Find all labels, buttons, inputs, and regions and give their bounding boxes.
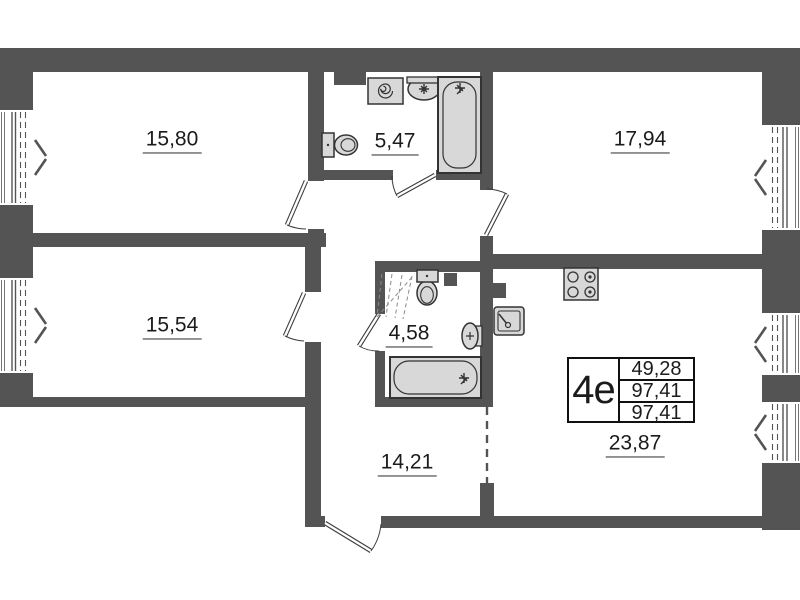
area-value: 97,41 (620, 381, 693, 403)
washing-machine-icon (368, 78, 403, 104)
room-label-bedroom-mid-left: 15,54 (143, 314, 202, 339)
sink-icon (407, 77, 441, 100)
window-opening-chevron (35, 140, 46, 175)
window-kitchen-lower (755, 404, 799, 461)
bathtub-icon (390, 357, 481, 398)
window-kitchen-upper (755, 315, 799, 373)
apartment-type-code: 4е (569, 359, 620, 421)
room-label-hallway: 14,21 (378, 451, 437, 476)
window-bedroom-top-right (755, 127, 799, 228)
room-label-bedroom-top-left: 15,80 (143, 128, 202, 153)
room-label-kitchen-living: 23,87 (606, 432, 665, 457)
sink-icon (462, 323, 482, 349)
apartment-areas: 49,28 97,41 97,41 (620, 359, 693, 421)
bathtub-icon (438, 77, 481, 173)
door-bedroom-mid-left (285, 293, 304, 341)
door-entrance (325, 523, 381, 551)
room-label-bathroom-top: 5,47 (372, 130, 419, 155)
window-bedroom-mid-left (2, 280, 47, 371)
door-bathroom-mid (359, 314, 379, 351)
kitchen-wall-nib (493, 283, 506, 298)
vent-shaft (444, 273, 457, 286)
door-bedroom-top-right (486, 189, 507, 235)
room-label-bathroom-mid: 4,58 (386, 322, 433, 347)
room-label-bedroom-top-right: 17,94 (611, 128, 670, 153)
kitchen-sink-icon (494, 307, 524, 335)
toilet-icon (417, 270, 438, 305)
toilet-icon (322, 133, 358, 157)
area-value: 97,41 (620, 403, 693, 423)
window-opening-chevron (35, 308, 46, 343)
door-bathroom-top (392, 175, 435, 196)
window-opening-chevron (755, 160, 766, 195)
window-opening-chevron (755, 327, 766, 362)
window-bedroom-top-left (2, 112, 47, 203)
door-bedroom-top-left (287, 181, 306, 229)
floor-plan-drawing (0, 0, 800, 600)
floor-plan: 15,80 5,47 17,94 15,54 4,58 14,21 23,87 … (0, 0, 800, 600)
window-opening-chevron (755, 415, 766, 450)
stove-icon (564, 268, 598, 300)
area-value: 49,28 (620, 359, 693, 381)
apartment-info-box: 4е 49,28 97,41 97,41 (567, 357, 695, 423)
